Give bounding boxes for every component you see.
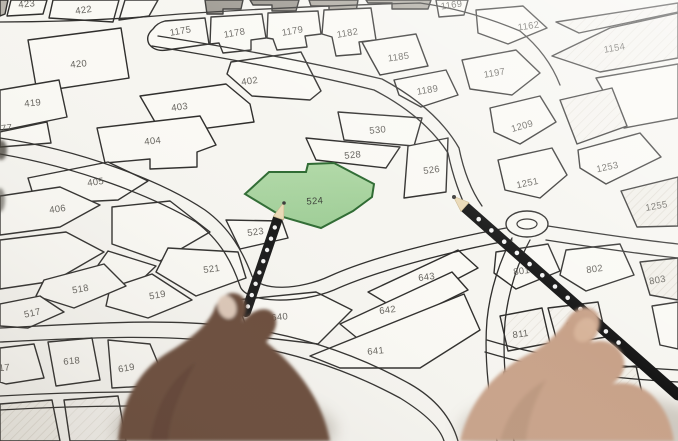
- photo-lighting-overlay: [0, 0, 678, 441]
- photo-cadastral-map: 423 422 1175 1178 1179 1182 1185 1169 11…: [0, 0, 678, 441]
- map-canvas: 423 422 1175 1178 1179 1182 1185 1169 11…: [0, 0, 678, 441]
